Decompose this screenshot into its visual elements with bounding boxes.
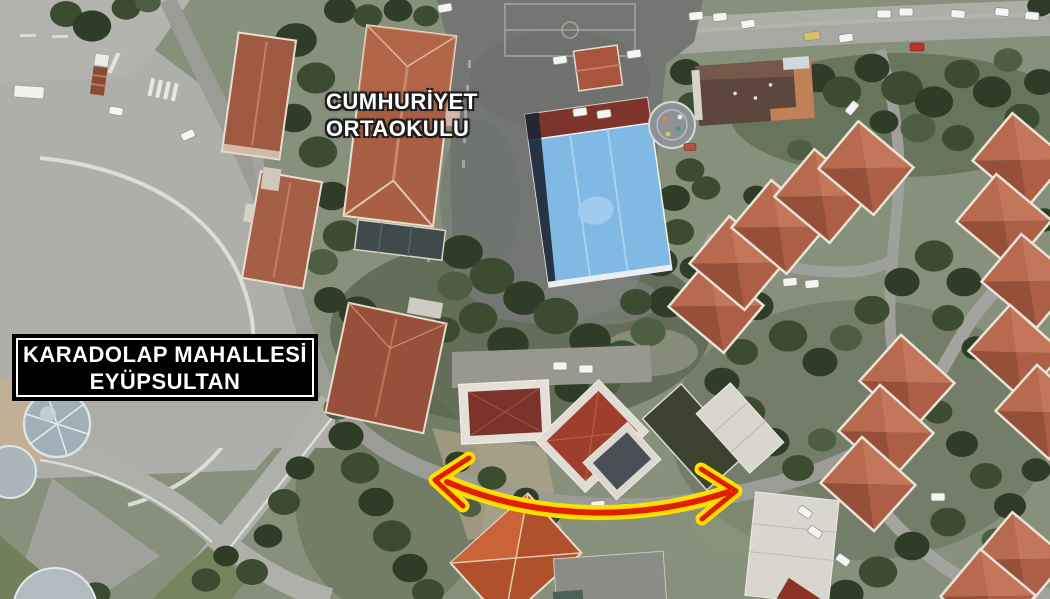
outbuilding-red-roof xyxy=(573,45,622,91)
building-gray-slab xyxy=(550,551,666,599)
building-brown-roof xyxy=(325,303,446,433)
satellite-map-screenshot: CUMHURİYET ORTAOKULU KARADOLAP MAHALLESİ… xyxy=(0,0,1050,599)
building-white-slab xyxy=(745,492,839,599)
satellite-imagery xyxy=(0,0,1050,599)
bus xyxy=(14,85,45,99)
playground-circle xyxy=(649,102,695,148)
building-maroon-roof xyxy=(691,56,815,126)
